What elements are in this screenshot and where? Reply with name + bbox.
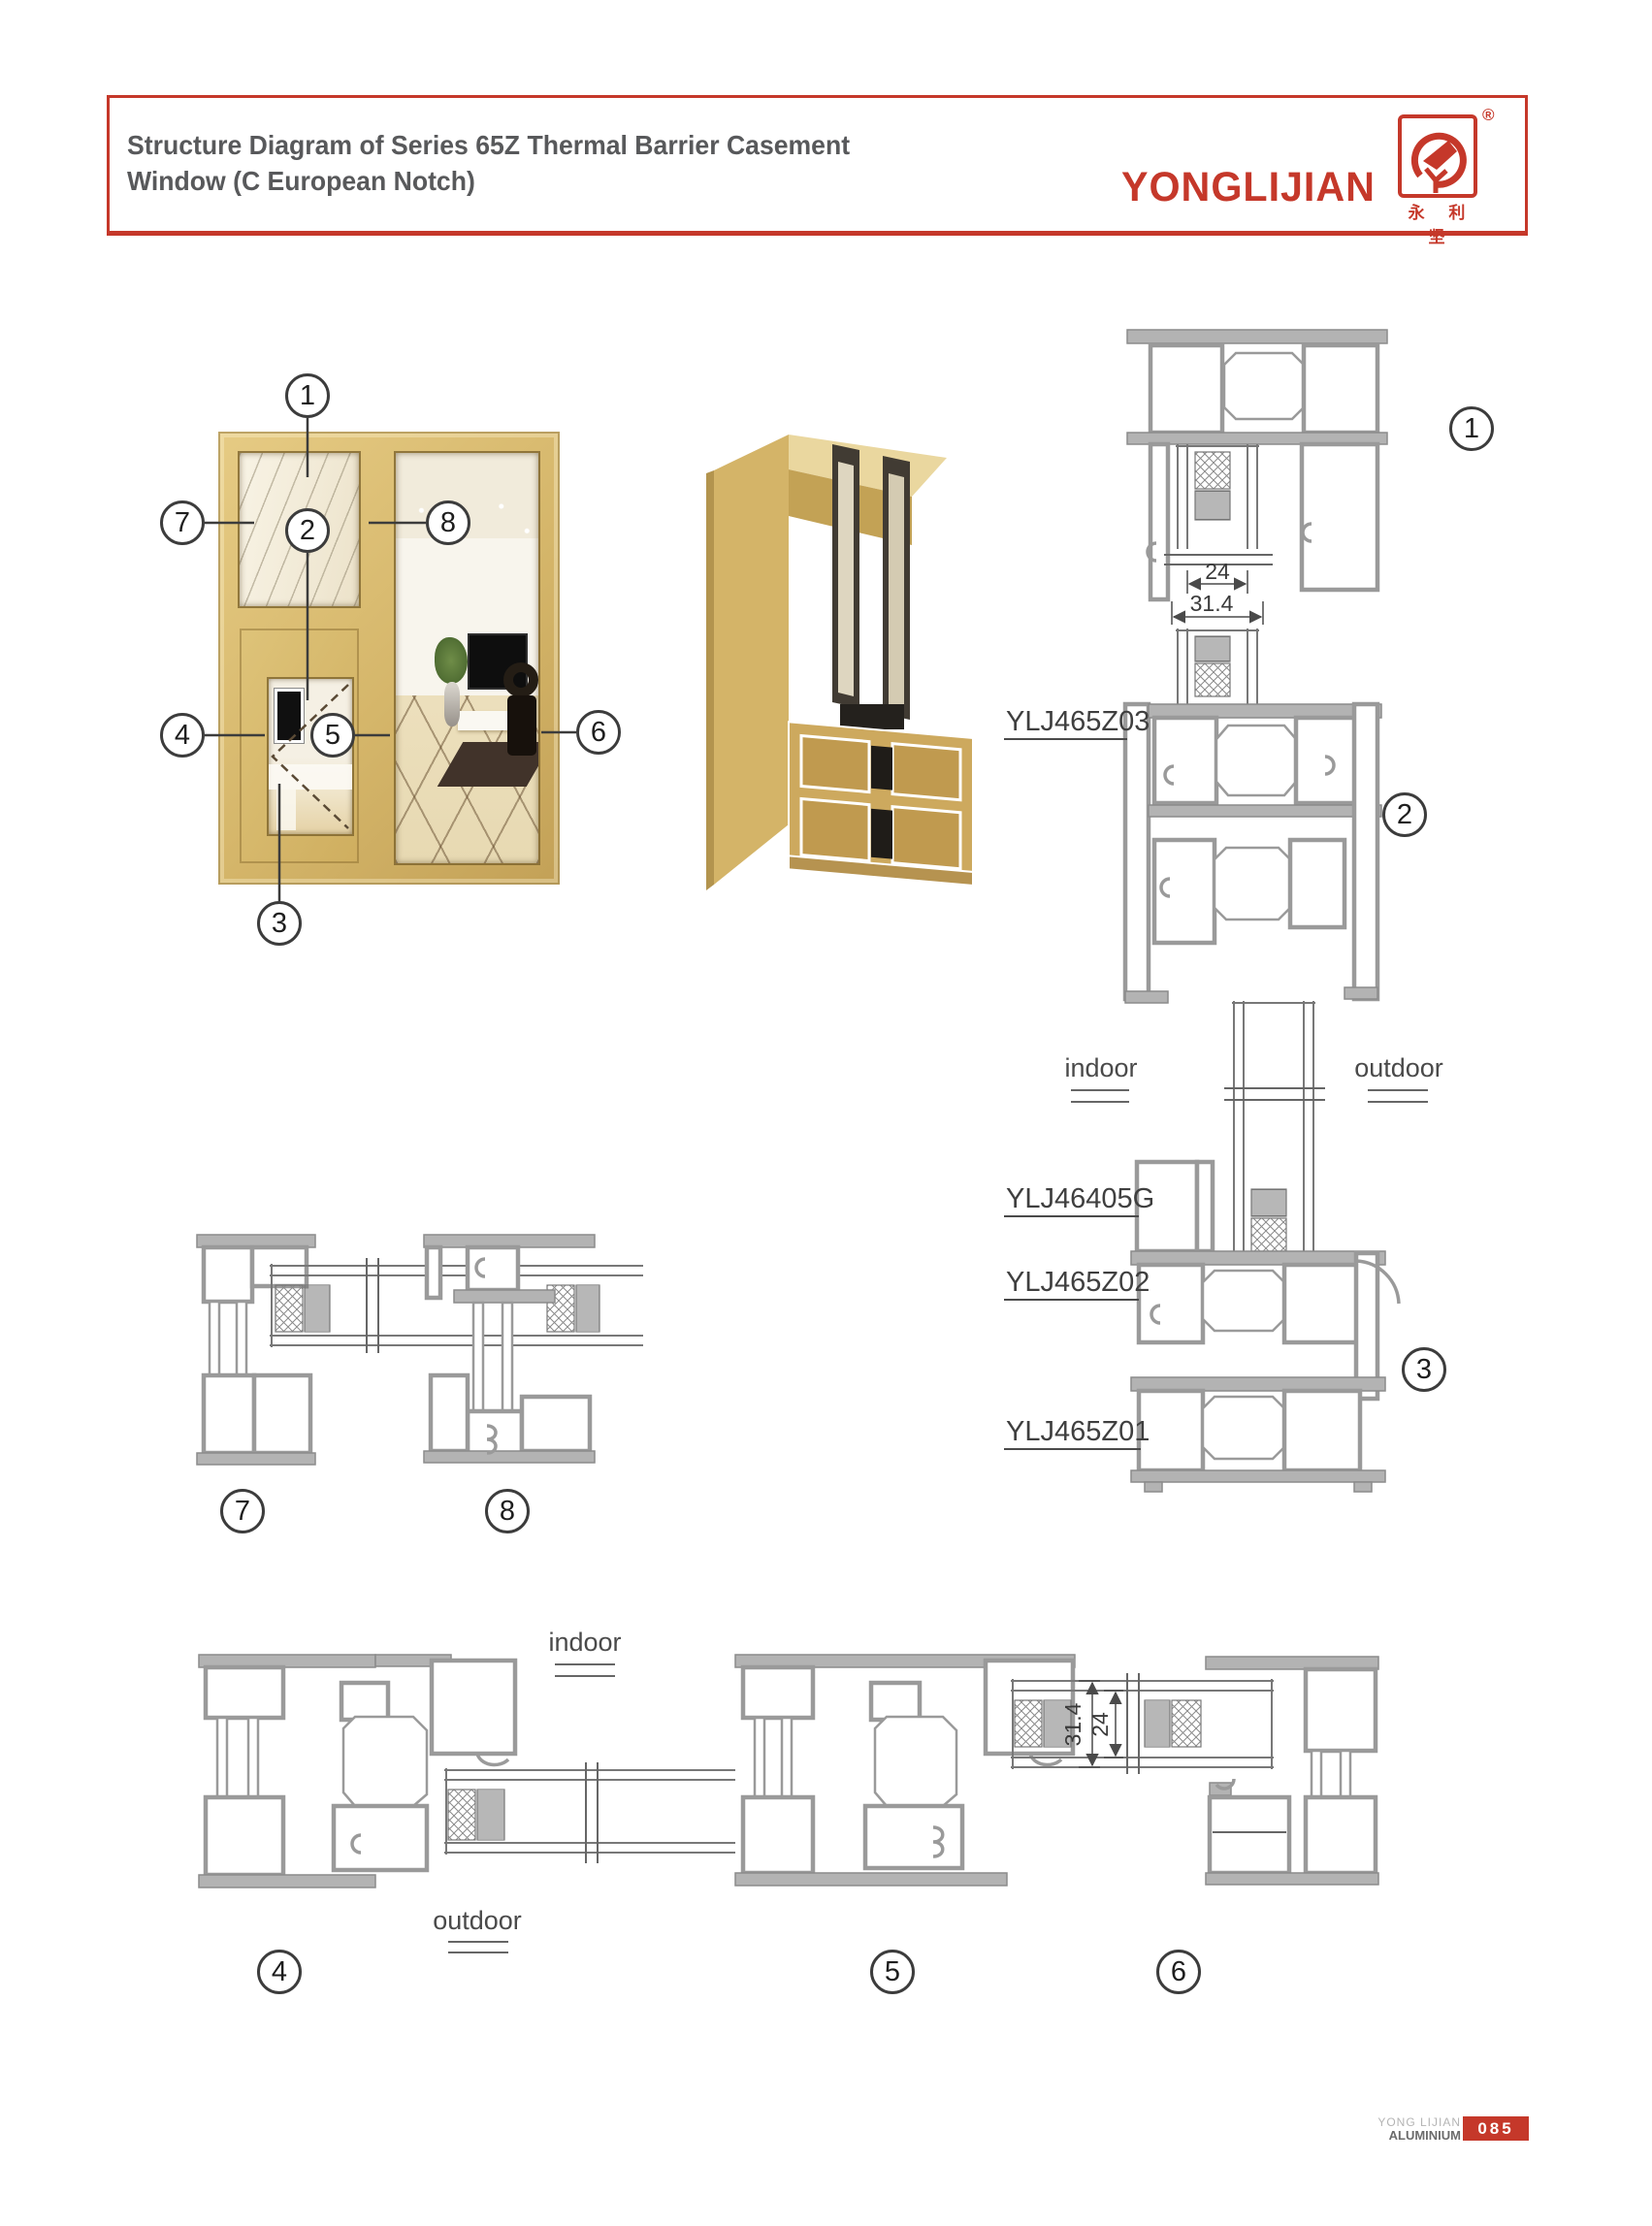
section-circle-8: 8 — [485, 1489, 530, 1533]
callout-2-label: 2 — [300, 515, 315, 547]
outdoor-text: outdoor — [1354, 1053, 1443, 1082]
brand-wordmark: YONGLIJIAN — [1121, 164, 1376, 211]
profile-label-ylj465z01: YLJ465Z01 — [1006, 1416, 1150, 1448]
section-circle-8-label: 8 — [500, 1496, 515, 1528]
outdoor-label-right-column: outdoor — [1345, 1053, 1452, 1083]
section-7-profile — [197, 1235, 315, 1465]
glazing-mid-row — [270, 1258, 643, 1353]
section-circle-1: 1 — [1449, 406, 1494, 451]
section-circle-6-label: 6 — [1171, 1956, 1186, 1988]
indoor-text-bottom: indoor — [548, 1628, 621, 1657]
section-circle-2-label: 2 — [1397, 799, 1412, 831]
profile-3d-render — [696, 417, 988, 897]
section-circle-3-label: 3 — [1416, 1354, 1432, 1386]
page-title-line2: Window (C European Notch) — [127, 163, 850, 199]
callout-3: 3 — [257, 901, 302, 946]
horizontal-section-4-5-6-drawing: 31.4 24 — [184, 1596, 1397, 1896]
callout-5: 5 — [310, 713, 355, 758]
profile-label-ylj465z02: YLJ465Z02 — [1006, 1267, 1150, 1299]
brand-chinese-name: 永 利 坚 — [1392, 199, 1481, 247]
svg-text:31.4: 31.4 — [1060, 1702, 1085, 1746]
label-leader-lines — [1004, 739, 1141, 1449]
indoor-label-right-column: indoor — [1048, 1053, 1154, 1083]
indoor-label-bottom-row: indoor — [532, 1628, 638, 1658]
section-circle-7-label: 7 — [235, 1496, 250, 1528]
callout-4-label: 4 — [175, 720, 190, 752]
callout-8-label: 8 — [440, 507, 456, 539]
section-5-profile — [735, 1655, 1075, 1886]
vertical-section-drawing: 24 31.4 — [999, 320, 1552, 1523]
header-box: Structure Diagram of Series 65Z Thermal … — [107, 95, 1528, 236]
callout-3-label: 3 — [272, 908, 287, 940]
horizontal-section-7-8-drawing — [184, 1227, 669, 1469]
glazing-fixed — [1224, 1001, 1325, 1253]
section-circle-5: 5 — [870, 1950, 915, 1994]
page-footer: YONG LIJIAN ALUMINIUM 085 — [1393, 2114, 1539, 2144]
section-8-profile — [424, 1235, 595, 1463]
profile-label-ylj465z03: YLJ465Z03 — [1006, 706, 1150, 738]
footer-brand-line2: ALUMINIUM — [1389, 2128, 1461, 2143]
glazing-vent-upper — [1164, 444, 1273, 565]
section-2-profile — [1125, 704, 1381, 1003]
callout-7: 7 — [160, 500, 205, 545]
section-circle-4-label: 4 — [272, 1956, 287, 1988]
callout-6: 6 — [576, 710, 621, 755]
section-circle-1-label: 1 — [1464, 413, 1479, 445]
indoor-text: indoor — [1064, 1053, 1137, 1082]
footer-brand-line1: YONG LIJIAN — [1377, 2115, 1461, 2129]
section-circle-7: 7 — [220, 1489, 265, 1533]
catalog-page: Structure Diagram of Series 65Z Thermal … — [0, 0, 1652, 2226]
callout-5-label: 5 — [325, 720, 340, 752]
callout-7-label: 7 — [175, 507, 190, 539]
brand-logo-icon — [1397, 113, 1480, 201]
photo-callout-lines — [97, 369, 698, 989]
outdoor-label-bottom-row: outdoor — [424, 1906, 531, 1936]
page-title: Structure Diagram of Series 65Z Thermal … — [127, 127, 850, 199]
callout-2: 2 — [285, 508, 330, 553]
svg-text:24: 24 — [1205, 559, 1230, 584]
svg-text:24: 24 — [1087, 1712, 1113, 1737]
section-circle-3: 3 — [1402, 1347, 1446, 1392]
callout-1-label: 1 — [300, 380, 315, 412]
outdoor-text-bottom: outdoor — [433, 1906, 522, 1935]
profile-label-ylj46405g: YLJ46405G — [1006, 1183, 1154, 1215]
callout-4: 4 — [160, 713, 205, 758]
section-circle-6: 6 — [1156, 1950, 1201, 1994]
section-circle-2: 2 — [1382, 792, 1427, 837]
dimension-unit-31-4: 31.4 — [1172, 591, 1263, 625]
glazing-vent-lower — [1176, 629, 1259, 704]
page-title-line1: Structure Diagram of Series 65Z Thermal … — [127, 127, 850, 163]
page-number-badge: 085 — [1463, 2116, 1529, 2141]
callout-6-label: 6 — [591, 717, 606, 749]
section-circle-5-label: 5 — [885, 1956, 900, 1988]
registered-trademark-icon: ® — [1482, 106, 1495, 125]
section-circle-4: 4 — [257, 1950, 302, 1994]
callout-8: 8 — [426, 500, 470, 545]
callout-1: 1 — [285, 373, 330, 418]
glazing-bottom-left — [444, 1762, 735, 1863]
svg-text:31.4: 31.4 — [1190, 591, 1234, 616]
